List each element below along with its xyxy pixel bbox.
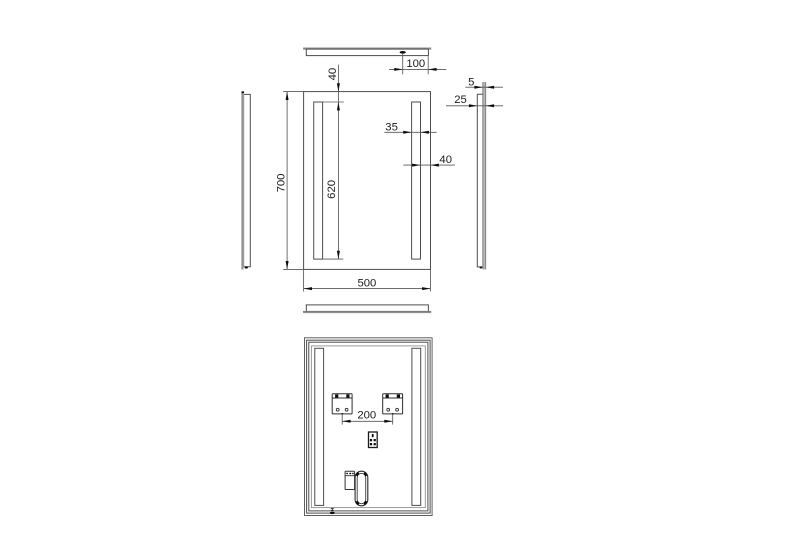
svg-text:620: 620 — [326, 180, 338, 199]
svg-text:25: 25 — [454, 94, 467, 106]
svg-text:500: 500 — [357, 277, 376, 289]
svg-text:35: 35 — [385, 121, 398, 133]
svg-text:5: 5 — [468, 76, 474, 88]
svg-text:700: 700 — [276, 174, 288, 193]
svg-text:40: 40 — [439, 154, 452, 166]
svg-text:100: 100 — [406, 58, 425, 70]
svg-text:40: 40 — [327, 68, 339, 81]
svg-text:200: 200 — [357, 410, 376, 422]
